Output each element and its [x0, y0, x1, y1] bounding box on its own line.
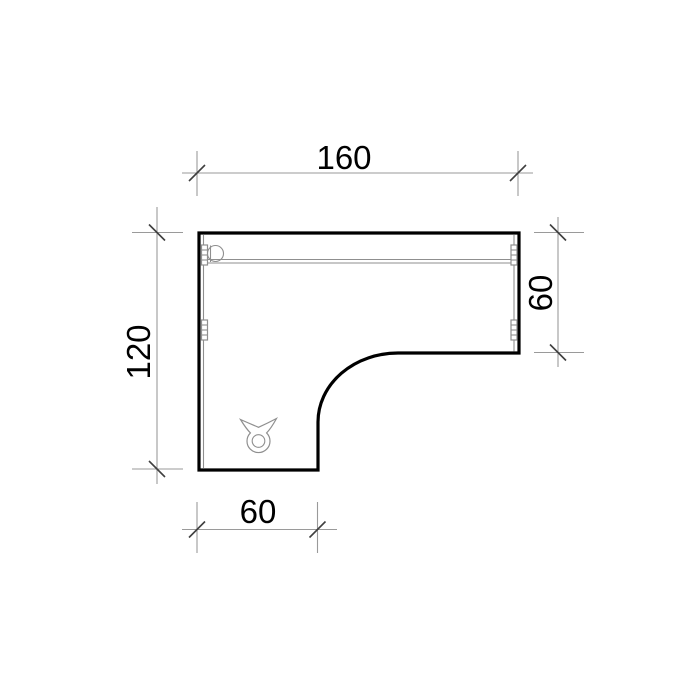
desk-outline — [199, 233, 519, 470]
dimension-label-right: 60 — [522, 275, 559, 312]
dimension-right: 60 — [522, 217, 584, 367]
dimension-left: 120 — [120, 207, 183, 484]
edge-bracket-icon — [511, 320, 517, 340]
dimension-top: 160 — [182, 139, 533, 196]
edge-bracket-icon — [511, 245, 517, 265]
edge-bracket-icon — [202, 245, 208, 265]
dimension-label-bottom: 60 — [240, 493, 277, 530]
dimension-bottom: 60 — [182, 493, 337, 553]
dimension-label-top: 160 — [316, 139, 371, 176]
desk-plan-drawing: 160 120 60 60 — [0, 0, 700, 700]
dimension-label-left: 120 — [120, 324, 157, 379]
desk-body — [199, 233, 519, 470]
cable-grommet-icon — [241, 419, 277, 453]
technical-drawing-canvas: 160 120 60 60 — [0, 0, 700, 700]
edge-bracket-icon — [202, 320, 208, 340]
